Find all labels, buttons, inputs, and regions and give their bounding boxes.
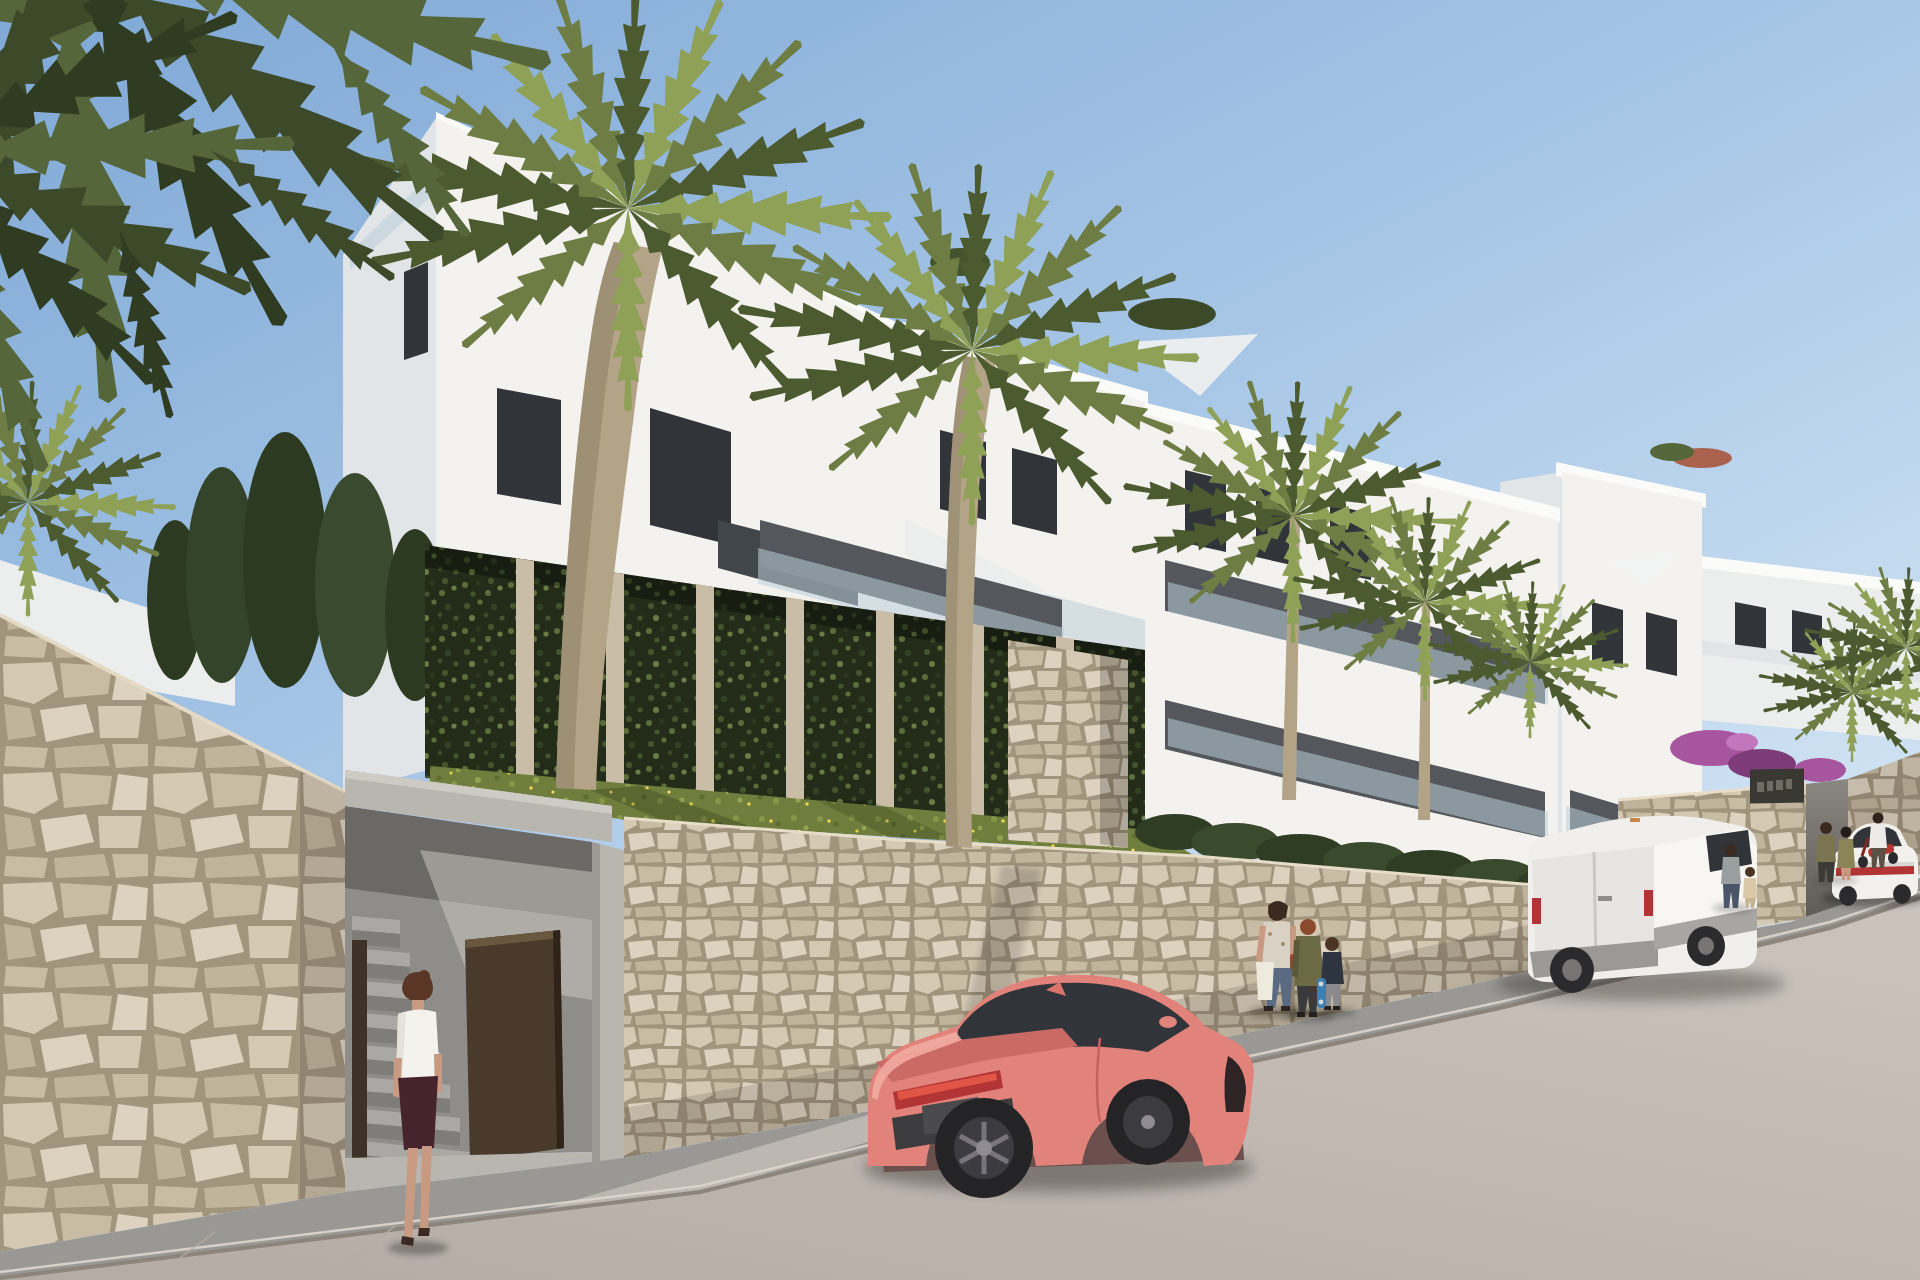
entrance-door[interactable] — [465, 930, 564, 1162]
shopping-bag — [1256, 962, 1274, 1000]
van-taillight-right — [1644, 890, 1653, 916]
stone-pillar-shade — [1100, 655, 1128, 848]
van-roof-marker — [1630, 818, 1640, 822]
van-taillight-left — [1532, 898, 1541, 924]
skirt — [398, 1076, 438, 1150]
van-door-handle — [1598, 896, 1612, 901]
architectural-render — [0, 0, 1920, 1280]
car-mirror — [1159, 1016, 1177, 1028]
render-canvas — [0, 0, 1920, 1280]
